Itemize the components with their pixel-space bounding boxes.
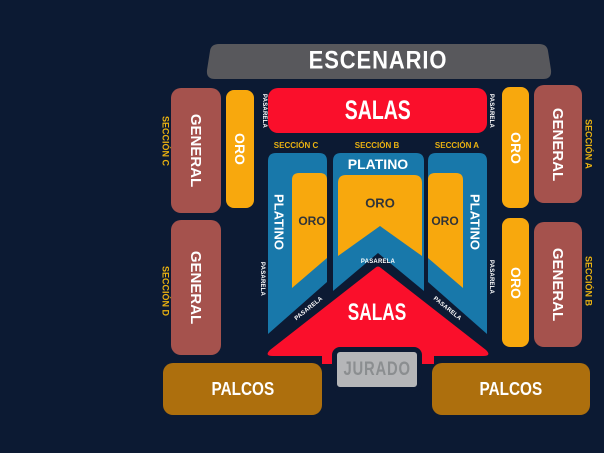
section-label-a-right: SECCIÓN A bbox=[584, 119, 593, 169]
oro-left-strip-section[interactable]: ORO bbox=[226, 90, 254, 208]
palcos-right-section[interactable]: PALCOS bbox=[432, 363, 590, 415]
platino-left-label: PLATINO bbox=[273, 194, 286, 250]
section-header-b: SECCIÓN B bbox=[355, 142, 399, 150]
jurado-section: JURADO bbox=[332, 347, 422, 392]
pasarela-right-top-label: PASARELA bbox=[488, 94, 494, 128]
salas-top-label: SALAS bbox=[345, 95, 411, 126]
section-label-c-left: SECCIÓN C bbox=[161, 116, 170, 166]
pasarela-left-bottom-label: PASARELA bbox=[259, 262, 265, 296]
platino-center-label: PLATINO bbox=[348, 157, 408, 171]
oro-right-label: ORO bbox=[431, 215, 458, 227]
seating-map: ESCENARIO SALAS SECCIÓN C SECCIÓN B SECC… bbox=[0, 0, 604, 453]
general-right-top-section[interactable]: GENERAL bbox=[534, 85, 582, 203]
general-left-bottom-label: GENERAL bbox=[188, 251, 205, 324]
salas-floor-label: SALAS bbox=[348, 301, 407, 325]
palcos-left-label: PALCOS bbox=[211, 379, 274, 400]
general-right-bottom-label: GENERAL bbox=[550, 248, 567, 321]
pasarela-left-top-label: PASARELA bbox=[261, 94, 267, 128]
general-left-top-label: GENERAL bbox=[188, 114, 205, 187]
general-left-top-section[interactable]: GENERAL bbox=[171, 88, 221, 213]
platino-right-label: PLATINO bbox=[469, 194, 482, 250]
stage-label: ESCENARIO bbox=[309, 49, 448, 74]
oro-right-bottom-strip-section[interactable]: ORO bbox=[502, 218, 529, 347]
section-label-d-left: SECCIÓN D bbox=[161, 266, 170, 316]
pasarela-right-bottom-label: PASARELA bbox=[488, 260, 494, 294]
jurado-label: JURADO bbox=[343, 359, 410, 381]
oro-right-bottom-strip-label: ORO bbox=[508, 267, 524, 299]
general-right-top-label: GENERAL bbox=[550, 107, 567, 180]
palcos-right-label: PALCOS bbox=[480, 379, 543, 400]
palcos-left-section[interactable]: PALCOS bbox=[163, 363, 322, 415]
section-header-a: SECCIÓN A bbox=[435, 142, 479, 150]
pasarela-center-label: PASARELA bbox=[361, 259, 395, 265]
oro-left-strip-label: ORO bbox=[232, 133, 248, 165]
oro-center-label: ORO bbox=[365, 197, 395, 210]
salas-top-section[interactable]: SALAS bbox=[268, 88, 487, 133]
section-header-c: SECCIÓN C bbox=[274, 142, 318, 150]
section-label-b-right: SECCIÓN B bbox=[584, 256, 593, 306]
general-right-bottom-section[interactable]: GENERAL bbox=[534, 222, 582, 347]
oro-left-label: ORO bbox=[298, 215, 325, 227]
oro-right-top-strip-section[interactable]: ORO bbox=[502, 87, 529, 208]
general-left-bottom-section[interactable]: GENERAL bbox=[171, 220, 221, 355]
oro-right-top-strip-label: ORO bbox=[508, 132, 524, 164]
